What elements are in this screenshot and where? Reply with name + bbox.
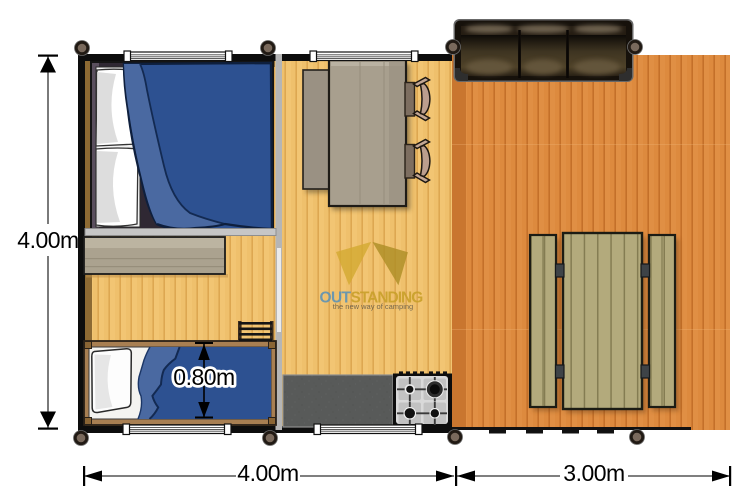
svg-text:4.00m: 4.00m bbox=[17, 227, 78, 253]
svg-text:the new way of camping: the new way of camping bbox=[333, 302, 413, 311]
svg-text:0.80m: 0.80m bbox=[173, 364, 234, 390]
svg-text:3.00m: 3.00m bbox=[563, 460, 624, 486]
svg-text:4.00m: 4.00m bbox=[237, 460, 298, 486]
